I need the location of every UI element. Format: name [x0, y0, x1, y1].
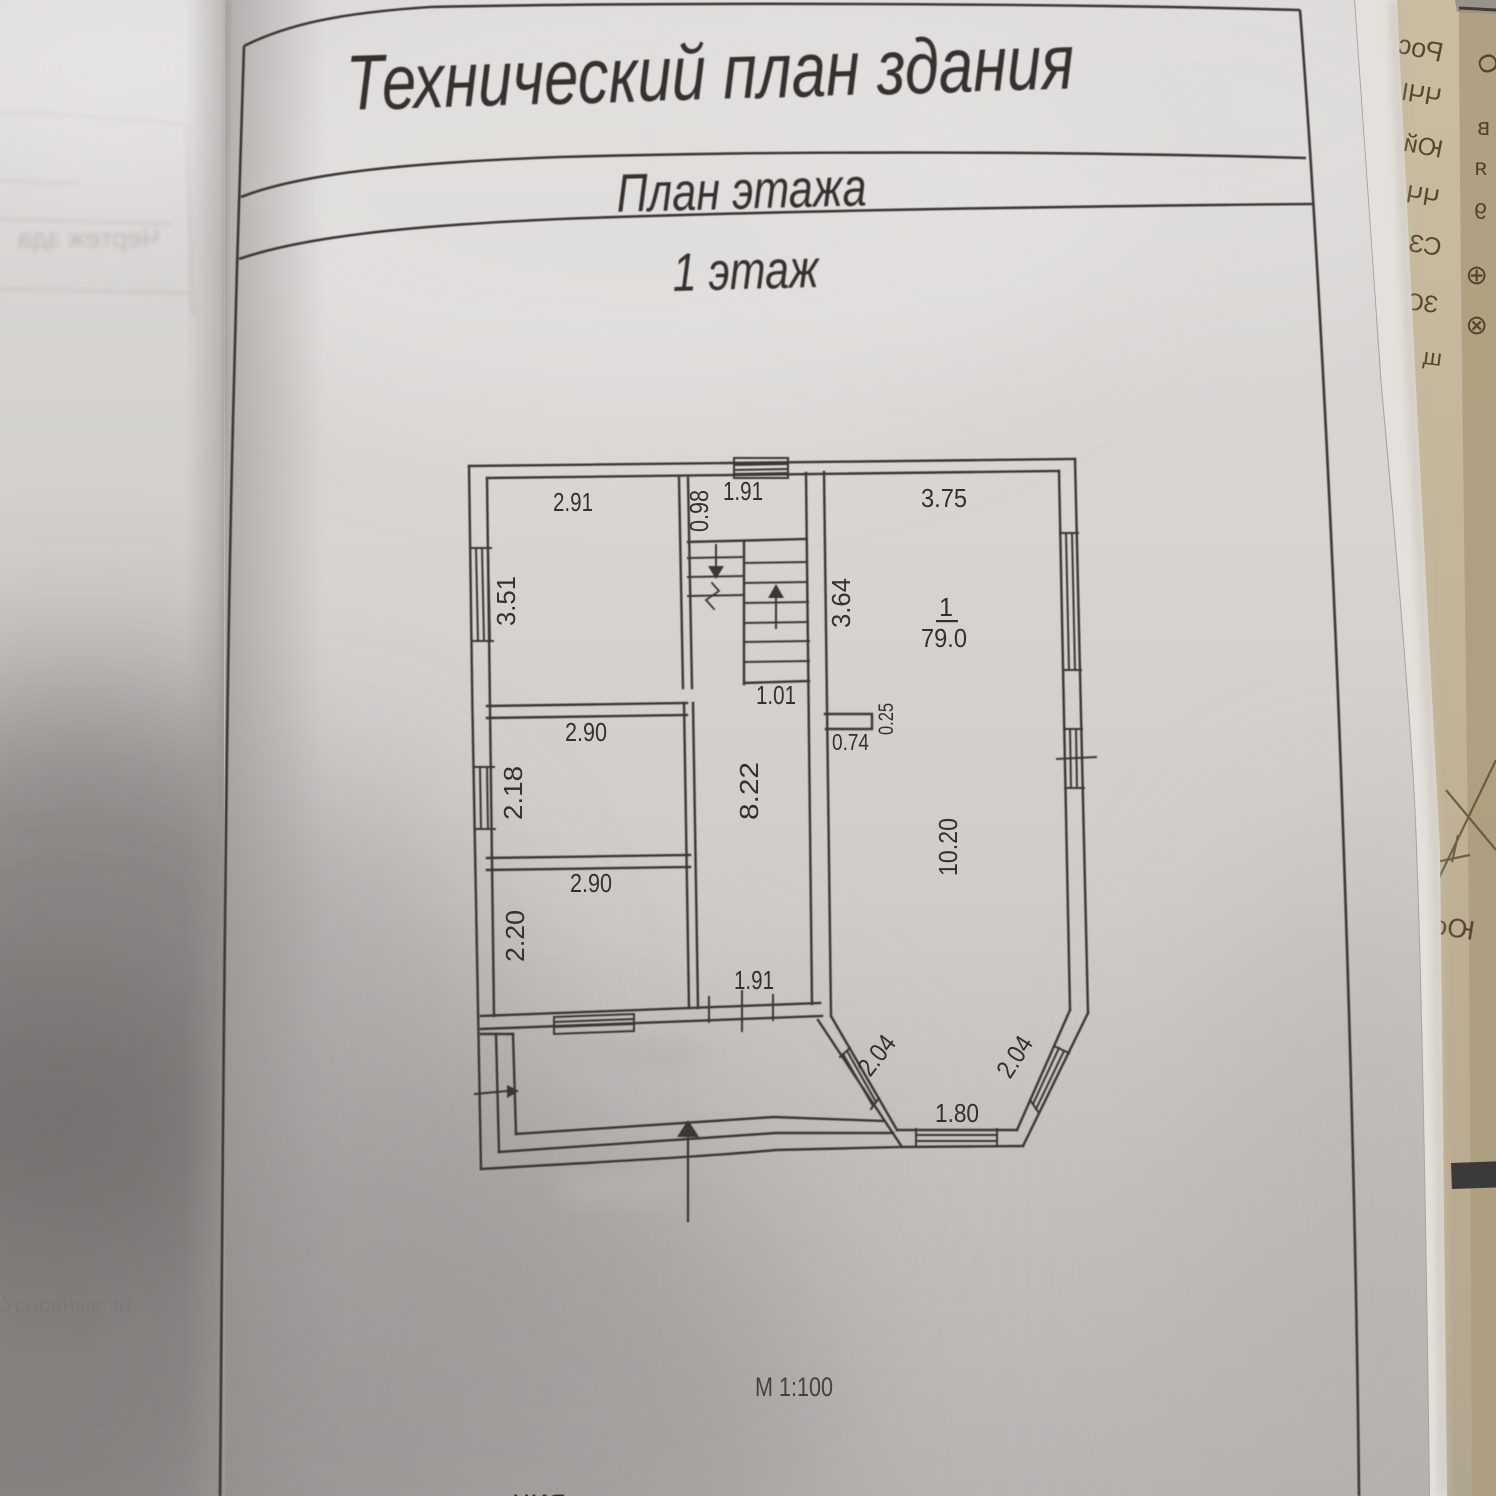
svg-text:⊕: ⊕ [1465, 260, 1488, 290]
svg-text:Чертеж зда: Чертеж зда [17, 223, 160, 253]
svg-text:1.91: 1.91 [723, 476, 763, 506]
svg-text:План этажа: План этажа [616, 157, 867, 224]
svg-text:я: я [1475, 154, 1487, 180]
svg-text:М 1:100: М 1:100 [755, 1372, 833, 1402]
svg-text:3.64: 3.64 [826, 578, 856, 628]
svg-text:2.90: 2.90 [565, 717, 607, 747]
svg-text:в: в [1477, 114, 1490, 141]
svg-text:1: 1 [939, 592, 953, 622]
svg-text:0.98: 0.98 [684, 490, 714, 532]
svg-text:1.80: 1.80 [935, 1098, 979, 1128]
svg-text:8.22: 8.22 [734, 762, 764, 820]
svg-text:2.20: 2.20 [500, 910, 530, 962]
svg-text:ЧЧ: ЧЧ [1404, 180, 1441, 213]
svg-text:9: 9 [1474, 198, 1487, 224]
svg-text:10.20: 10.20 [933, 818, 963, 876]
svg-text:2.91: 2.91 [553, 487, 593, 517]
svg-text:79.0: 79.0 [921, 623, 967, 653]
svg-text:ния: ния [512, 1482, 567, 1496]
svg-text:СЗ: СЗ [1407, 229, 1444, 262]
svg-text:1.91: 1.91 [734, 965, 774, 995]
svg-text:0.74: 0.74 [832, 729, 869, 755]
svg-text:щ: щ [1422, 343, 1444, 371]
svg-text:0.25: 0.25 [875, 703, 898, 735]
svg-text:3.51: 3.51 [491, 576, 521, 626]
svg-text:1 этаж: 1 этаж [672, 239, 822, 303]
svg-text:2.18: 2.18 [498, 766, 528, 820]
svg-text:3.75: 3.75 [921, 483, 967, 513]
svg-text:2.90: 2.90 [570, 868, 612, 898]
svg-text:1.01: 1.01 [756, 680, 796, 710]
svg-text:⊗: ⊗ [1465, 310, 1488, 340]
